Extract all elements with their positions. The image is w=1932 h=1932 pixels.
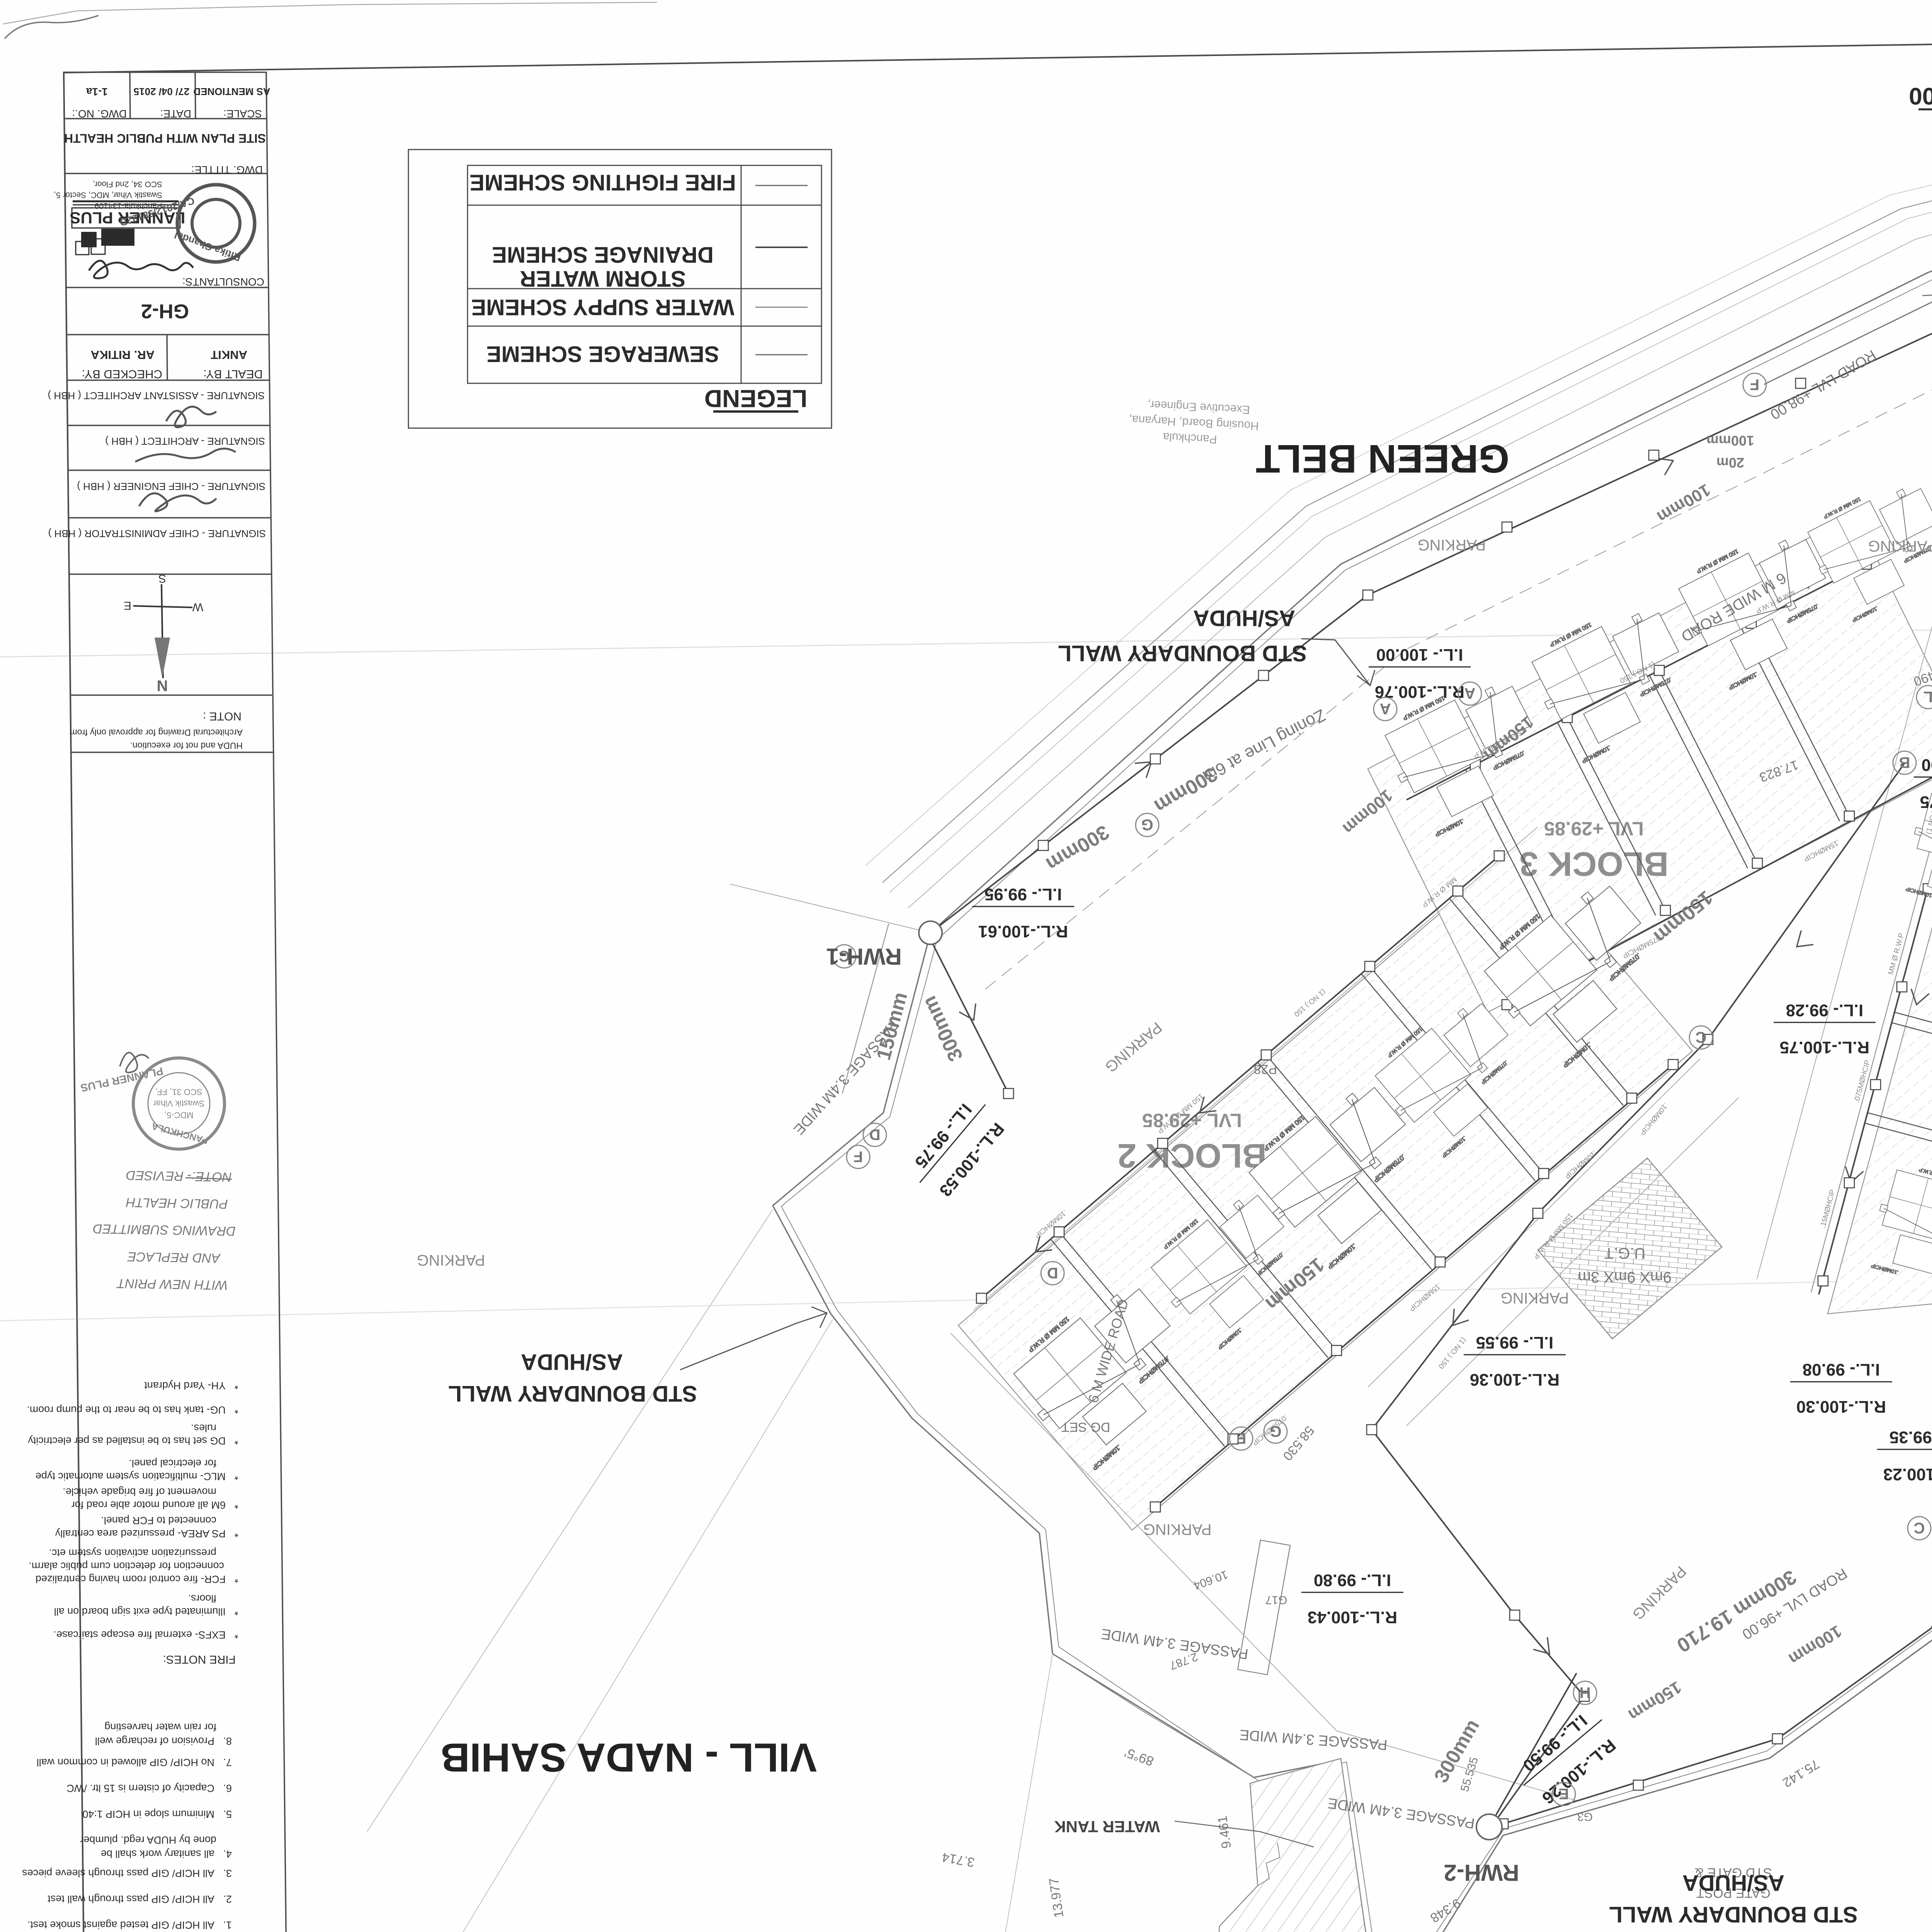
svg-text:PARKING: PARKING <box>1868 537 1932 554</box>
svg-text:* PS AREA- pressurized area: * PS AREA- pressurized area centrally <box>55 1528 238 1539</box>
svg-text:W: W <box>192 601 203 614</box>
svg-text:D: D <box>869 1126 881 1143</box>
svg-text:R.L.-100.23: R.L.-100.23 <box>1883 1465 1932 1484</box>
svg-text:SIGNATURE - CHIEF ADMINISTRATO: SIGNATURE - CHIEF ADMINISTRATOR ( HBH ) <box>48 528 266 539</box>
svg-text:* FCR- fire control room hav: * FCR- fire control room having centrali… <box>36 1573 238 1585</box>
svg-text:SEWERAGE SCHEME: SEWERAGE SCHEME <box>486 342 719 367</box>
svg-text:27/ 04/ 2015: 27/ 04/ 2015 <box>134 86 190 97</box>
svg-text:100mm: 100mm <box>1654 480 1714 526</box>
svg-text:9.348: 9.348 <box>1428 1896 1463 1925</box>
svg-text:DEALT BY:: DEALT BY: <box>203 367 263 381</box>
svg-text:* YH- Yard Hydrant: * YH- Yard Hydrant <box>144 1380 238 1391</box>
svg-text:AS MENTIONED: AS MENTIONED <box>193 86 270 97</box>
svg-text:R.L.-100.43: R.L.-100.43 <box>1308 1608 1397 1627</box>
svg-text:R.L.-100.75: R.L.-100.75 <box>1920 793 1932 811</box>
svg-text:DG SET: DG SET <box>1061 1420 1111 1434</box>
svg-text:* UG- tank has to be near to: * UG- tank has to be near to the pump ro… <box>27 1404 238 1416</box>
svg-text:WATER TANK: WATER TANK <box>1054 1818 1160 1836</box>
svg-text:300mm: 300mm <box>1042 821 1113 876</box>
svg-text:SIGNATURE - CHIEF ENGINEER ( H: SIGNATURE - CHIEF ENGINEER ( HBH ) <box>77 481 265 492</box>
svg-text:6. Capacity of cistern is 15: 6. Capacity of cistern is 15 ltr. /WC <box>66 1782 232 1794</box>
svg-text:PARKING: PARKING <box>1417 536 1486 553</box>
svg-text:SIGNATURE - ARCHITECT ( HBH ): SIGNATURE - ARCHITECT ( HBH ) <box>105 435 265 447</box>
svg-text:SCALE - 1:200: SCALE - 1:200 <box>1909 82 1932 109</box>
svg-text:(1 NO.) 150: (1 NO.) 150 <box>1437 1336 1468 1371</box>
svg-text:* DG set has to be installed: * DG set has to be installed as per elec… <box>28 1435 238 1447</box>
svg-text:CHECKED BY:: CHECKED BY: <box>82 367 162 381</box>
svg-text:B: B <box>1899 754 1910 771</box>
svg-text:SCO 31, FF,: SCO 31, FF, <box>155 1087 202 1097</box>
svg-text:.075MØHCIP: .075MØHCIP <box>1853 1059 1872 1104</box>
svg-text:I.L.- 99.95: I.L.- 99.95 <box>985 885 1062 904</box>
svg-text:VILL - NADA SAHIB: VILL - NADA SAHIB <box>440 1735 817 1780</box>
svg-text:A: A <box>1380 700 1391 717</box>
svg-text:P28: P28 <box>1254 1062 1277 1077</box>
svg-text:1. All HCIP/ GIP tested agai: 1. All HCIP/ GIP tested against smoke te… <box>27 1919 232 1931</box>
svg-text:STD BOUNDARY WALL: STD BOUNDARY WALL <box>448 1381 697 1406</box>
svg-text:PASSAGE 3.4M WIDE: PASSAGE 3.4M WIDE <box>1100 1625 1249 1662</box>
svg-text:2. All HCIP/ GIP pass throug: 2. All HCIP/ GIP pass through wall test <box>48 1893 232 1905</box>
svg-text:SIGNATURE - ASSISTANT ARCHITEC: SIGNATURE - ASSISTANT ARCHITECT ( HBH ) <box>48 390 265 401</box>
svg-text:3. All HCIP/ GIP pass throug: 3. All HCIP/ GIP pass through sleeve pie… <box>22 1867 232 1879</box>
svg-text:PASSAGE 3.4M WIDE: PASSAGE 3.4M WIDE <box>1239 1726 1388 1753</box>
svg-text:GH-2: GH-2 <box>141 300 189 322</box>
svg-text:E: E <box>1559 1785 1569 1802</box>
svg-text:300mm: 300mm <box>1430 1715 1484 1786</box>
svg-text:S: S <box>158 572 166 585</box>
svg-text:9mX 9mX 3m: 9mX 9mX 3m <box>1578 1269 1672 1286</box>
svg-text:I.L.- 99.28: I.L.- 99.28 <box>1786 1001 1864 1020</box>
svg-text:100mm: 100mm <box>1339 786 1396 838</box>
svg-text:MDC-5,: MDC-5, <box>164 1110 194 1120</box>
svg-text:connected to FCR panel.: connected to FCR panel. <box>101 1515 216 1526</box>
svg-text:Swastik Vihar, MDC, Sector 5,: Swastik Vihar, MDC, Sector 5, <box>54 190 162 199</box>
svg-text:ROAD LVL +98.00: ROAD LVL +98.00 <box>1767 347 1879 422</box>
svg-text:I.L.- 99.35: I.L.- 99.35 <box>1889 1428 1932 1447</box>
svg-text:U.G.T: U.G.T <box>1604 1245 1646 1262</box>
svg-text:R.L.-100.36: R.L.-100.36 <box>1470 1370 1560 1389</box>
svg-text:DWG. NO.:: DWG. NO.: <box>72 108 127 120</box>
svg-text:Panchkula: Panchkula <box>1162 430 1217 446</box>
svg-text:I.L.- 99.55: I.L.- 99.55 <box>1476 1333 1554 1352</box>
svg-text:RWH-2: RWH-2 <box>1444 1860 1519 1886</box>
svg-text:SCO 34, 2nd Floor,: SCO 34, 2nd Floor, <box>93 180 162 189</box>
svg-text:Architectural Drawing for appr: Architectural Drawing for approval only … <box>70 728 243 738</box>
svg-text:I.L.- 99.08: I.L.- 99.08 <box>1803 1360 1880 1379</box>
svg-text:75.142: 75.142 <box>1780 1757 1822 1790</box>
svg-text:4. all sanitary work shall b: 4. all sanitary work shall be <box>101 1848 232 1860</box>
svg-text:L: L <box>1923 688 1932 705</box>
svg-text:BLOCK 3: BLOCK 3 <box>1519 845 1668 883</box>
svg-text:G17: G17 <box>1265 1594 1287 1606</box>
svg-text:C: C <box>1696 1029 1707 1046</box>
svg-text:BLOCK 2: BLOCK 2 <box>1117 1137 1267 1175</box>
svg-text:WITH NEW PRINT: WITH NEW PRINT <box>116 1276 228 1293</box>
svg-text:F: F <box>1750 376 1759 393</box>
svg-text:3.714: 3.714 <box>941 1850 976 1870</box>
svg-text:F: F <box>854 1148 863 1165</box>
svg-text:A: A <box>1464 685 1476 702</box>
svg-text:I.L.- 100.00: I.L.- 100.00 <box>1921 755 1932 774</box>
svg-text:PARKING: PARKING <box>1500 1289 1569 1306</box>
svg-text:(1 NO.) 150: (1 NO.) 150 <box>1293 987 1327 1018</box>
svg-text:MM Ø R.W.P: MM Ø R.W.P <box>1887 932 1906 975</box>
svg-text:150mm: 150mm <box>1625 1677 1685 1725</box>
svg-text:CONSULTANTS:: CONSULTANTS: <box>182 276 264 288</box>
svg-text:G: G <box>1269 1423 1281 1440</box>
svg-text:N: N <box>157 677 168 694</box>
svg-text:STD BOUNDARY WALL: STD BOUNDARY WALL <box>1058 641 1307 666</box>
svg-text:PASSAGE 3.4M WIDE: PASSAGE 3.4M WIDE <box>790 1017 901 1138</box>
svg-text:SCALE:: SCALE: <box>223 108 262 120</box>
svg-text:DRAWING SUBMITTED: DRAWING SUBMITTED <box>93 1221 236 1238</box>
svg-text:PANCHKULA: PANCHKULA <box>150 1121 209 1146</box>
svg-text:WATER SUPPY SCHEME: WATER SUPPY SCHEME <box>471 295 734 320</box>
svg-text:FIRE FIGHTING SCHEME: FIRE FIGHTING SCHEME <box>469 170 736 195</box>
svg-text:rules.: rules. <box>191 1422 216 1434</box>
svg-text:AS/HUDA: AS/HUDA <box>1682 1870 1784 1895</box>
svg-text:SITE PLAN WITH PUBLIC HEALTH: SITE PLAN WITH PUBLIC HEALTH <box>64 131 266 145</box>
svg-text:100mm: 100mm <box>1785 1621 1845 1668</box>
svg-text:R.L.-100.30: R.L.-100.30 <box>1796 1397 1886 1416</box>
svg-text:NOTE:- REVISED: NOTE:- REVISED <box>126 1168 232 1184</box>
svg-text:* MLC- multification system: * MLC- multification system automatic ty… <box>36 1471 238 1482</box>
svg-text:DRAINAGE SCHEME: DRAINAGE SCHEME <box>492 242 714 267</box>
svg-text:for rain water harvesting: for rain water harvesting <box>104 1721 216 1733</box>
svg-text:PUBLIC HEALTH: PUBLIC HEALTH <box>126 1195 228 1211</box>
svg-text:AS/HUDA: AS/HUDA <box>521 1349 623 1374</box>
svg-text:Executive Engineer,: Executive Engineer, <box>1147 398 1250 416</box>
svg-text:7. No HCIP/ GIP allowed in c: 7. No HCIP/ GIP allowed in common wall <box>37 1757 232 1768</box>
svg-text:DWG. TITTLE:: DWG. TITTLE: <box>191 164 263 176</box>
svg-text:PARKING: PARKING <box>1102 1019 1165 1076</box>
svg-text:E: E <box>1236 1430 1247 1447</box>
svg-text:PARKING: PARKING <box>1629 1563 1689 1623</box>
svg-text:DATE:: DATE: <box>160 108 191 120</box>
svg-text:RWH-1: RWH-1 <box>826 944 902 969</box>
svg-text:13.977: 13.977 <box>1046 1877 1066 1918</box>
svg-text:PARKING: PARKING <box>417 1252 485 1269</box>
svg-text:300mm: 300mm <box>918 993 967 1065</box>
svg-text:* Illuminated type exit sign: * Illuminated type exit sign board on al… <box>54 1606 238 1617</box>
svg-text:20m: 20m <box>1716 455 1744 471</box>
svg-text:STORM WATER: STORM WATER <box>520 266 686 291</box>
svg-text:G3: G3 <box>1577 1810 1593 1823</box>
svg-text:STD BOUNDARY WALL: STD BOUNDARY WALL <box>1609 1902 1858 1927</box>
svg-text:.15MØHCIP: .15MØHCIP <box>1819 1189 1837 1229</box>
svg-text:AR. RITIKA: AR. RITIKA <box>91 348 155 362</box>
svg-text:I.L.- 100.00: I.L.- 100.00 <box>1376 645 1463 664</box>
svg-text:R.L.-100.76: R.L.-100.76 <box>1375 682 1464 701</box>
svg-text:G: G <box>1141 816 1153 833</box>
svg-text:PARKING: PARKING <box>1143 1521 1211 1538</box>
svg-text:C: C <box>1914 1519 1925 1536</box>
svg-text:Zoning Line at 6m: Zoning Line at 6m <box>1200 705 1329 786</box>
svg-text:ANKIT: ANKIT <box>211 348 247 362</box>
svg-text:10.604: 10.604 <box>1192 1568 1230 1592</box>
svg-text:5. Minimum slope in HCIP 1:4: 5. Minimum slope in HCIP 1:40 <box>82 1808 232 1820</box>
svg-text:connection for detection cum p: connection for detection cum public alar… <box>29 1560 224 1572</box>
svg-text:AND REPLACE: AND REPLACE <box>127 1249 221 1265</box>
svg-text:* 6M all around motor able r: * 6M all around motor able road for <box>71 1499 238 1511</box>
svg-text:H: H <box>1580 1684 1591 1701</box>
svg-text:58.530: 58.530 <box>1280 1423 1317 1463</box>
svg-text:GREEN BELT: GREEN BELT <box>1256 437 1509 481</box>
svg-text:E: E <box>124 599 131 612</box>
svg-text:9.461: 9.461 <box>1215 1815 1234 1850</box>
svg-text:AS/HUDA: AS/HUDA <box>1193 605 1295 631</box>
svg-text:89°5': 89°5' <box>1123 1745 1156 1769</box>
svg-text:movement of fire brigade vehic: movement of fire brigade vehicle. <box>63 1486 216 1498</box>
svg-text:D: D <box>1047 1264 1058 1281</box>
svg-text:R.L.-100.61: R.L.-100.61 <box>978 922 1068 941</box>
svg-text:FIRE NOTES:: FIRE NOTES: <box>163 1653 236 1666</box>
svg-text:for electrical panel.: for electrical panel. <box>129 1458 216 1469</box>
svg-text:I.L.- 99.80: I.L.- 99.80 <box>1314 1571 1391 1590</box>
svg-text:* EXFS- external fire escape: * EXFS- external fire escape staircase. <box>53 1629 238 1641</box>
svg-text:LEGEND: LEGEND <box>704 385 808 413</box>
svg-text:100mm: 100mm <box>1706 433 1754 449</box>
svg-text:LVL +29.85: LVL +29.85 <box>1544 818 1644 840</box>
svg-text:HUDA and not for execution.: HUDA and not for execution. <box>130 741 243 751</box>
svg-text:done by HUDA regd. plumber: done by HUDA regd. plumber <box>80 1834 216 1846</box>
svg-text:R.L.-100.75: R.L.-100.75 <box>1780 1038 1869 1057</box>
svg-text:NOTE :: NOTE : <box>203 710 241 723</box>
svg-text:floors.: floors. <box>188 1593 216 1604</box>
svg-text:pressurization activation syst: pressurization activation system etc. <box>49 1547 216 1559</box>
svg-text:8. Provision of recharge wel: 8. Provision of recharge well <box>95 1735 232 1747</box>
svg-text:Swastik Vihar: Swastik Vihar <box>153 1099 205 1108</box>
svg-text:1-1a: 1-1a <box>86 86 108 98</box>
